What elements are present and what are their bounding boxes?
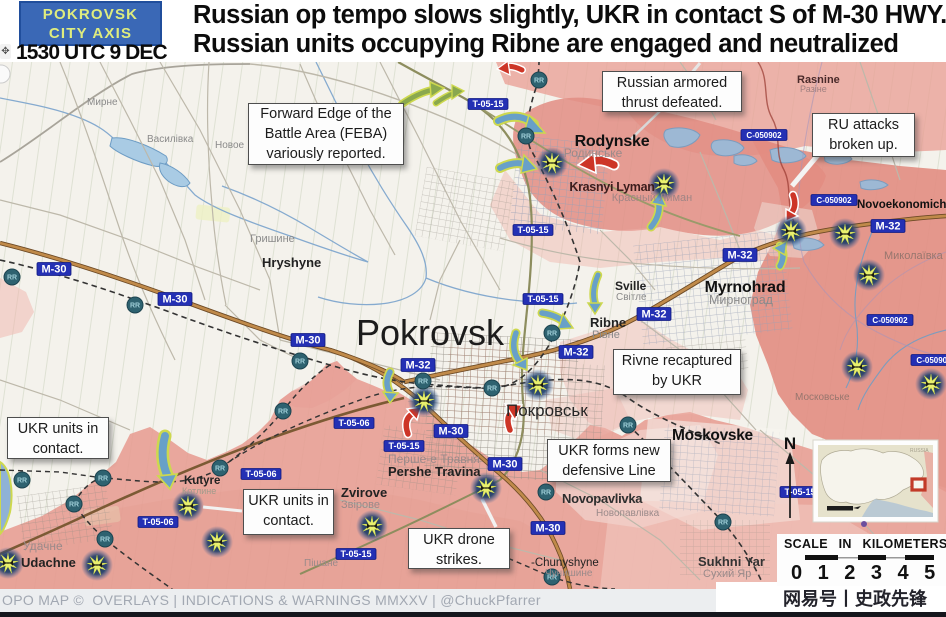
svg-text:Novoekonomichne: Novoekonomichne bbox=[857, 199, 946, 211]
svg-text:Перше‐е Травня: Перше‐е Травня bbox=[388, 452, 480, 466]
svg-text:T-05-15: T-05-15 bbox=[527, 294, 558, 304]
svg-text:RR: RR bbox=[487, 386, 497, 393]
svg-text:Удачне: Удачне bbox=[23, 539, 63, 553]
svg-text:RR: RR bbox=[69, 502, 79, 509]
svg-text:M-30: M-30 bbox=[535, 523, 560, 535]
svg-text:Звірове: Звірове bbox=[341, 499, 380, 511]
svg-text:Ribne: Ribne bbox=[590, 315, 626, 330]
svg-text:Світле: Світле bbox=[616, 292, 647, 303]
svg-text:RR: RR bbox=[418, 379, 428, 386]
svg-text:T-05-15: T-05-15 bbox=[472, 99, 503, 109]
svg-text:T-05-15: T-05-15 bbox=[517, 225, 548, 235]
svg-text:M-32: M-32 bbox=[641, 309, 666, 321]
svg-text:M-30: M-30 bbox=[41, 264, 66, 276]
svg-text:RR: RR bbox=[278, 409, 288, 416]
svg-text:RR: RR bbox=[130, 303, 140, 310]
svg-text:Чунишине: Чунишине bbox=[545, 568, 593, 579]
svg-text:Udachne: Udachne bbox=[21, 555, 76, 570]
svg-text:Pershe Travina: Pershe Travina bbox=[388, 464, 481, 479]
svg-text:C-050902: C-050902 bbox=[872, 316, 908, 325]
svg-text:N: N bbox=[784, 434, 796, 453]
svg-text:Гришине: Гришине bbox=[250, 233, 295, 245]
svg-text:Sukhni Yar: Sukhni Yar bbox=[698, 554, 765, 569]
svg-text:T-05-15: T-05-15 bbox=[784, 487, 815, 497]
svg-text:T-05-15: T-05-15 bbox=[340, 549, 371, 559]
svg-text:M-30: M-30 bbox=[295, 335, 320, 347]
svg-text:Sville: Sville bbox=[615, 279, 647, 293]
svg-text:Pokrovsk: Pokrovsk bbox=[356, 312, 505, 353]
svg-text:Новое: Новое bbox=[215, 140, 245, 151]
svg-text:M-32: M-32 bbox=[727, 250, 752, 262]
svg-text:M-30: M-30 bbox=[492, 459, 517, 471]
svg-text:Moskovske: Moskovske bbox=[672, 427, 754, 444]
svg-text:Novopavlivka: Novopavlivka bbox=[562, 491, 643, 506]
svg-text:Новопавлівка: Новопавлівка bbox=[596, 508, 660, 519]
svg-text:Пішане: Пішане bbox=[304, 558, 339, 569]
svg-text:RR: RR bbox=[718, 520, 728, 527]
svg-text:M-30: M-30 bbox=[162, 294, 187, 306]
svg-text:RR: RR bbox=[623, 423, 633, 430]
svg-text:RR: RR bbox=[17, 478, 27, 485]
svg-text:Hryshyne: Hryshyne bbox=[262, 255, 321, 270]
svg-text:T-05-06: T-05-06 bbox=[338, 418, 369, 428]
svg-text:T-05-15: T-05-15 bbox=[388, 441, 419, 451]
svg-text:M-32: M-32 bbox=[405, 360, 430, 372]
svg-text:RR: RR bbox=[215, 466, 225, 473]
svg-text:Василівка: Василівка bbox=[147, 134, 194, 145]
svg-text:Мирне: Мирне bbox=[87, 97, 118, 108]
svg-text:C-050902: C-050902 bbox=[816, 196, 852, 205]
svg-text:Мирноград: Мирноград bbox=[709, 293, 774, 307]
svg-text:Родинське: Родинське bbox=[564, 146, 623, 160]
svg-text:Zvirove: Zvirove bbox=[341, 485, 387, 500]
svg-text:Котлине: Котлине bbox=[182, 486, 216, 496]
svg-text:RR: RR bbox=[534, 78, 544, 85]
svg-text:RR: RR bbox=[7, 275, 17, 282]
svg-text:RR: RR bbox=[98, 476, 108, 483]
svg-text:Сухий Яр: Сухий Яр bbox=[703, 568, 751, 580]
svg-text:C-050902: C-050902 bbox=[916, 356, 946, 365]
svg-text:Покровськ: Покровськ bbox=[506, 401, 588, 420]
svg-text:RR: RR bbox=[295, 359, 305, 366]
svg-text:RUSSIA: RUSSIA bbox=[910, 448, 929, 454]
svg-text:Миколаївка: Миколаївка bbox=[884, 250, 944, 262]
svg-text:Рівне: Рівне bbox=[592, 329, 620, 341]
svg-text:Московське: Московське bbox=[795, 392, 850, 403]
svg-text:M-32: M-32 bbox=[563, 347, 588, 359]
svg-text:RR: RR bbox=[547, 331, 557, 338]
svg-text:T-05-06: T-05-06 bbox=[245, 469, 276, 479]
svg-text:M-32: M-32 bbox=[875, 221, 900, 233]
svg-text:M-30: M-30 bbox=[438, 426, 463, 438]
svg-text:C-050902: C-050902 bbox=[746, 131, 782, 140]
svg-text:RR: RR bbox=[521, 134, 531, 141]
svg-text:RR: RR bbox=[100, 537, 110, 544]
svg-text:T-05-06: T-05-06 bbox=[142, 517, 173, 527]
svg-text:RR: RR bbox=[541, 490, 551, 497]
svg-text:Красный Лиман: Красный Лиман bbox=[612, 192, 692, 204]
svg-text:Разіне: Разіне bbox=[800, 84, 827, 94]
